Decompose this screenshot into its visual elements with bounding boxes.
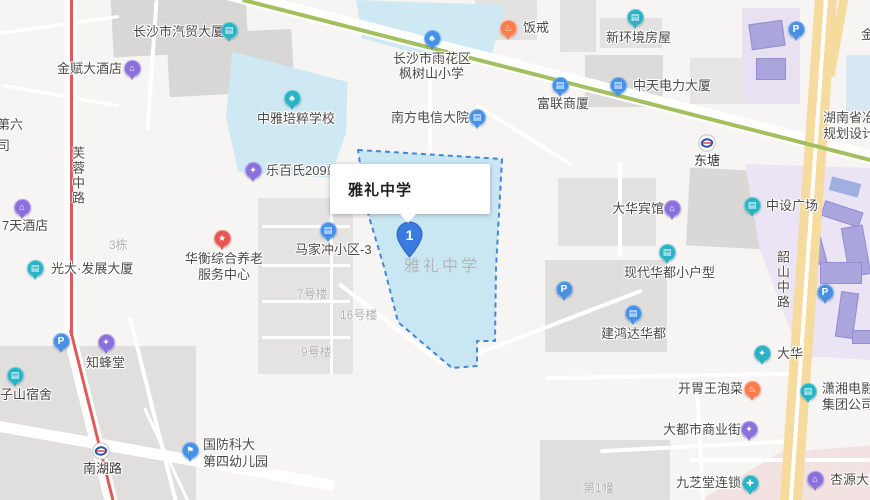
poi-7days-hotel-label[interactable]: 7天酒店 xyxy=(2,218,48,233)
poi-dadushi-street-icon[interactable]: ✦ xyxy=(741,421,758,438)
poi-xingyuan-hotel-icon[interactable]: ⌂ xyxy=(807,471,824,488)
poi-hunan-institute-label[interactable]: 规划设计 xyxy=(823,126,870,141)
poi-jianhongda-huadu-icon[interactable]: ▤ xyxy=(625,305,642,322)
poi-xiandai-huadu-label[interactable]: 现代华都小户型 xyxy=(624,265,715,280)
poi-zhifengtang-label[interactable]: 知蜂堂 xyxy=(86,355,125,370)
poi-fengshushan-school-icon[interactable]: ♣ xyxy=(424,30,441,47)
poi-guangda-building-icon[interactable]: ▤ xyxy=(27,260,44,277)
poi-dahua-hotel-icon[interactable]: ⌂ xyxy=(664,200,681,217)
poi-kaiweiwang-paocai-label[interactable]: 开胃王泡菜 xyxy=(678,381,743,396)
poi-xinhuanjing-house-label[interactable]: 新环境房屋 xyxy=(606,30,671,45)
road-label-shaoshan-middle-road: 韶山中路 xyxy=(773,250,792,310)
poi-fanjie-label[interactable]: 饭戒 xyxy=(523,20,549,35)
poi-kaiweiwang-paocai-icon[interactable]: ♨ xyxy=(744,381,761,398)
poi-xiaoxiang-film-label[interactable]: 集团公司 xyxy=(822,397,870,412)
poi-guofangkeda-kindergarten-icon[interactable]: ⚑ xyxy=(182,442,199,459)
poi-jiuzhitang-label[interactable]: 九芝堂连锁 xyxy=(676,475,741,490)
parking-icon[interactable]: P xyxy=(788,21,805,38)
poi-lebaishi-209-label[interactable]: 乐百氏209站 xyxy=(266,163,340,178)
poi-tooltip[interactable]: 雅礼中学 xyxy=(330,164,490,214)
poi-guofangkeda-kindergarten-label[interactable]: 第四幼儿园 xyxy=(203,454,268,469)
building-1zhuang-label: 第1幢 xyxy=(583,479,614,496)
poi-jinfu-hotel-icon[interactable]: ⌂ xyxy=(124,60,141,77)
poi-huaheng-center-icon[interactable]: ★ xyxy=(214,230,231,247)
poi-fengshushan-school-label[interactable]: 枫树山小学 xyxy=(399,66,464,81)
poi-fengshushan-school-label[interactable]: 长沙市雨花区 xyxy=(393,51,471,66)
poi-jiuzhitang-icon[interactable]: ✚ xyxy=(742,475,759,492)
poi-majiachong-3-icon[interactable]: ▤ xyxy=(320,222,337,239)
metro-station-nanhu-road-icon[interactable] xyxy=(92,442,110,460)
poi-qimao-building-label[interactable]: 长沙市汽贸大厦 xyxy=(133,24,224,39)
poi-nanfang-telecom-icon[interactable]: ▤ xyxy=(469,109,486,126)
poi-xiaoxiang-film-label[interactable]: 潇湘电影 xyxy=(822,381,870,396)
building-9-label: 9号楼 xyxy=(301,343,332,360)
poi-zhongya-school-icon[interactable]: ♣ xyxy=(284,90,301,107)
poi-zhongtian-power-label[interactable]: 中天电力大厦 xyxy=(633,78,711,93)
poi-dahua-hotel-label[interactable]: 大华宾馆 xyxy=(612,201,664,216)
poi-no6-partial-label[interactable]: 第六 xyxy=(0,117,23,132)
poi-xinhuanjing-house-icon[interactable]: ▤ xyxy=(627,9,644,26)
poi-fanjie-icon[interactable]: ♨ xyxy=(500,20,517,37)
poi-jin-partial-label[interactable]: 金 xyxy=(861,27,870,42)
metro-station-nanhu-road-label[interactable]: 南湖路 xyxy=(83,461,122,476)
poi-zhongshe-plaza-label[interactable]: 中设广场 xyxy=(766,198,818,213)
poi-huaheng-center-label[interactable]: 服务中心 xyxy=(198,267,250,282)
poi-xiaoxiang-film-icon[interactable]: ▤ xyxy=(800,383,817,400)
poi-guofangkeda-kindergarten-label[interactable]: 国防科大 xyxy=(203,437,255,452)
poi-zhongtian-power-icon[interactable]: ▤ xyxy=(610,77,627,94)
poi-hunan-institute-label[interactable]: 湖南省冶 xyxy=(823,110,870,125)
poi-fulian-building-label[interactable]: 富联商厦 xyxy=(537,96,589,111)
poi-jinfu-hotel-label[interactable]: 金赋大酒店 xyxy=(57,61,122,76)
poi-dahua-icon[interactable]: ✦ xyxy=(754,345,771,362)
poi-lebaishi-209-icon[interactable]: ✦ xyxy=(245,162,262,179)
poi-xiandai-huadu-icon[interactable]: ▤ xyxy=(659,244,676,261)
poi-zishan-dorm-icon[interactable]: ▤ xyxy=(7,367,24,384)
poi-zishan-dorm-label[interactable]: 子山宿舍 xyxy=(0,387,52,402)
poi-majiachong-3-label[interactable]: 马家冲小区-3 xyxy=(295,242,372,257)
poi-tooltip-label: 雅礼中学 xyxy=(348,179,412,200)
road-label-furong-middle-road: 芙蓉中路 xyxy=(68,146,87,206)
poi-7days-hotel-icon[interactable]: ⌂ xyxy=(14,199,31,216)
building-16-label: 16号楼 xyxy=(340,306,377,323)
metro-station-dongtang-label[interactable]: 东塘 xyxy=(694,153,720,168)
metro-station-dongtang-icon[interactable] xyxy=(698,134,716,152)
poi-jianhongda-huadu-label[interactable]: 建鸿达华都 xyxy=(601,326,666,341)
poi-xingyuan-hotel-label[interactable]: 杏源大酒店 xyxy=(830,472,870,487)
building-3dong-label: 3栋 xyxy=(109,236,128,253)
parking-icon[interactable]: P xyxy=(53,333,70,350)
poi-guangda-building-label[interactable]: 光大·发展大厦 xyxy=(51,261,133,276)
poi-dadushi-street-label[interactable]: 大都市商业街 xyxy=(663,422,741,437)
poi-dahua-label[interactable]: 大华 xyxy=(777,346,803,361)
poi-fulian-building-icon[interactable]: ▤ xyxy=(552,77,569,94)
poi-no6-partial-label[interactable]: 司 xyxy=(0,138,10,153)
poi-nanfang-telecom-label[interactable]: 南方电信大院 xyxy=(391,110,469,125)
poi-zhongya-school-label[interactable]: 中雅培粹学校 xyxy=(257,111,335,126)
poi-zhongshe-plaza-icon[interactable]: ▤ xyxy=(744,197,761,214)
building-7-label: 7号楼 xyxy=(297,285,328,302)
parking-icon[interactable]: P xyxy=(817,284,834,301)
poi-qimao-building-icon[interactable]: ▤ xyxy=(221,22,238,39)
parking-icon[interactable]: P xyxy=(556,281,573,298)
poi-zhifengtang-icon[interactable]: ✦ xyxy=(98,334,115,351)
poi-huaheng-center-label[interactable]: 华衡综合养老 xyxy=(185,251,263,266)
map-canvas[interactable]: 雅礼中学 ▤长沙市汽贸大厦⌂金赋大酒店♨饭戒▤新环境房屋♣长沙市雨花区枫树山小学… xyxy=(0,0,870,500)
